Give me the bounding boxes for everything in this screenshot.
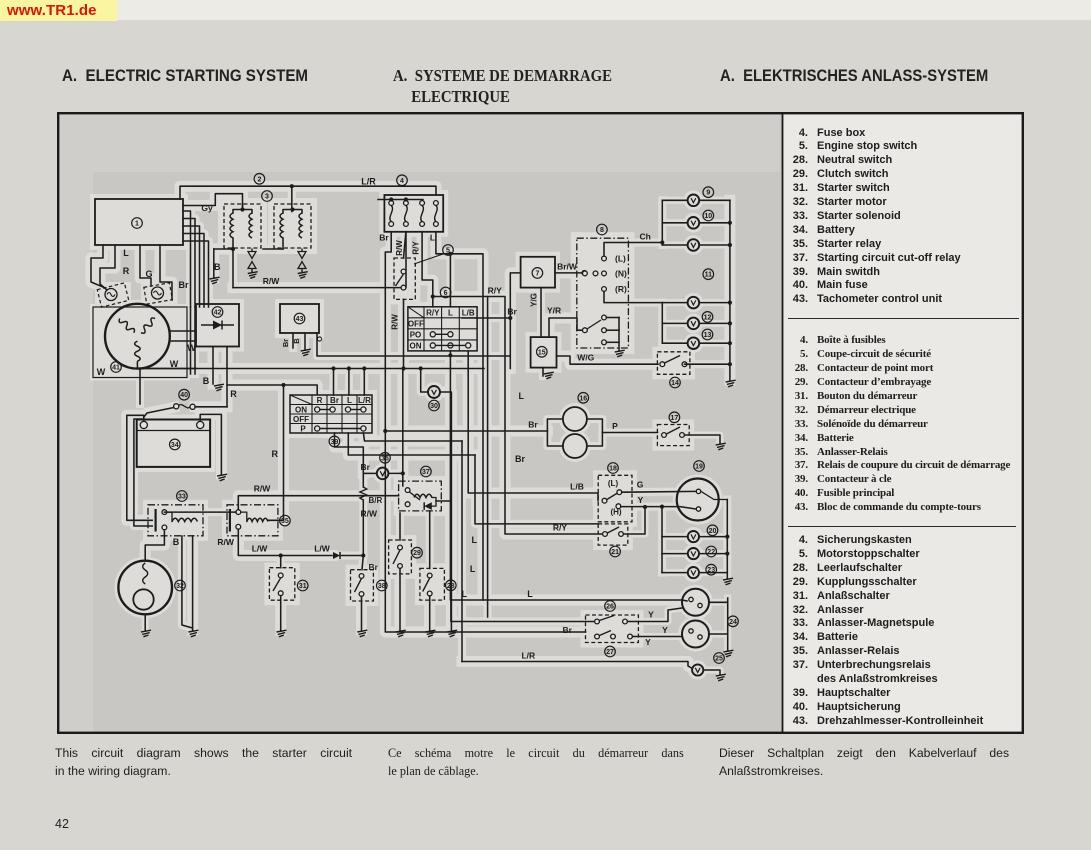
svg-text:Y: Y (638, 495, 644, 505)
svg-text:Ch: Ch (640, 232, 651, 242)
svg-text:B: B (203, 376, 210, 386)
svg-text:10: 10 (704, 213, 712, 220)
svg-text:ON: ON (410, 341, 422, 350)
svg-text:25: 25 (715, 656, 723, 663)
svg-text:21: 21 (611, 549, 619, 556)
svg-text:Br/W: Br/W (557, 262, 578, 272)
svg-text:R/Y: R/Y (426, 308, 440, 317)
svg-text:8: 8 (600, 227, 604, 234)
svg-text:36: 36 (381, 455, 389, 462)
svg-text:L: L (527, 589, 533, 599)
svg-text:35: 35 (281, 518, 289, 525)
svg-text:(R): (R) (615, 284, 627, 294)
svg-text:Br: Br (379, 233, 389, 243)
svg-text:42: 42 (214, 310, 222, 317)
svg-text:L/B: L/B (570, 482, 584, 492)
svg-text:9: 9 (706, 190, 710, 197)
svg-text:Br: Br (507, 307, 517, 317)
svg-text:L: L (430, 233, 435, 243)
svg-text:24: 24 (729, 619, 737, 626)
svg-text:3: 3 (265, 194, 269, 201)
svg-text:(N): (N) (615, 268, 627, 278)
svg-text:30: 30 (430, 403, 438, 410)
svg-text:38: 38 (378, 583, 386, 590)
svg-text:37: 37 (422, 469, 430, 476)
svg-text:(H): (H) (610, 508, 621, 517)
svg-text:L: L (518, 391, 524, 401)
svg-text:43: 43 (296, 316, 304, 323)
svg-text:G: G (145, 269, 152, 279)
svg-text:16: 16 (579, 395, 587, 402)
svg-text:P: P (300, 424, 306, 433)
svg-text:29: 29 (413, 550, 421, 557)
svg-text:Br: Br (330, 396, 339, 405)
svg-text:R: R (230, 389, 237, 399)
svg-text:W: W (97, 367, 106, 377)
svg-text:(L): (L) (615, 254, 626, 264)
svg-text:O: O (315, 336, 324, 342)
svg-text:L: L (472, 535, 478, 545)
svg-text:L/R: L/R (358, 396, 371, 405)
svg-text:R/Y: R/Y (412, 241, 421, 255)
svg-text:L/B: L/B (462, 308, 475, 317)
svg-text:27: 27 (606, 649, 614, 656)
svg-text:ON: ON (295, 405, 307, 414)
svg-text:20: 20 (709, 528, 717, 535)
svg-text:L/W: L/W (252, 544, 269, 554)
svg-text:41: 41 (112, 365, 120, 372)
svg-text:1: 1 (135, 221, 139, 228)
svg-text:31: 31 (299, 583, 307, 590)
svg-text:Y: Y (648, 610, 654, 620)
svg-text:B: B (292, 338, 301, 344)
svg-text:13: 13 (704, 332, 712, 339)
svg-text:PO: PO (410, 330, 422, 339)
svg-text:Y/G: Y/G (530, 293, 539, 307)
svg-text:W: W (170, 359, 179, 369)
svg-text:B: B (173, 537, 180, 547)
svg-text:Y/R: Y/R (547, 306, 561, 316)
svg-text:5: 5 (446, 248, 450, 255)
svg-text:Y: Y (645, 637, 651, 647)
svg-text:23: 23 (707, 567, 715, 574)
svg-text:14: 14 (671, 380, 679, 387)
svg-text:Br: Br (528, 420, 538, 430)
svg-text:L: L (123, 248, 129, 258)
svg-text:17: 17 (671, 415, 679, 422)
svg-text:Br: Br (178, 280, 188, 290)
svg-text:L/R: L/R (361, 177, 376, 187)
svg-text:L: L (470, 564, 476, 574)
svg-text:L/W: L/W (314, 544, 331, 554)
svg-text:R/W: R/W (391, 314, 400, 330)
svg-text:Gy: Gy (201, 203, 213, 213)
svg-text:7: 7 (535, 270, 539, 277)
svg-text:6: 6 (444, 290, 448, 297)
svg-text:R/W: R/W (263, 276, 281, 286)
svg-text:W/G: W/G (577, 353, 594, 363)
svg-text:G: G (637, 480, 644, 490)
svg-text:R/W: R/W (254, 484, 272, 494)
svg-text:OFF: OFF (408, 319, 424, 328)
svg-text:B/R: B/R (369, 496, 383, 505)
svg-text:26: 26 (606, 604, 614, 611)
svg-text:R: R (272, 449, 279, 459)
svg-text:19: 19 (695, 464, 703, 471)
svg-text:OFF: OFF (293, 415, 309, 424)
svg-text:15: 15 (538, 349, 546, 356)
svg-text:22: 22 (707, 549, 715, 556)
svg-text:12: 12 (704, 314, 712, 321)
svg-text:40: 40 (180, 392, 188, 399)
svg-text:W: W (187, 343, 196, 353)
svg-text:Br: Br (361, 462, 371, 472)
svg-text:R/W: R/W (217, 537, 235, 547)
svg-text:B: B (214, 262, 221, 272)
svg-text:L: L (347, 396, 352, 405)
svg-text:R: R (317, 396, 323, 405)
svg-text:Y: Y (662, 625, 668, 635)
svg-text:L: L (448, 308, 453, 317)
svg-text:R: R (123, 266, 130, 276)
svg-text:2: 2 (257, 176, 261, 183)
svg-text:4: 4 (400, 178, 404, 185)
svg-text:(L): (L) (608, 479, 619, 488)
svg-text:Br: Br (563, 625, 573, 635)
svg-text:Br: Br (369, 562, 379, 572)
svg-text:34: 34 (171, 442, 179, 449)
svg-text:R/Y: R/Y (488, 286, 503, 296)
svg-text:Br: Br (515, 454, 525, 464)
svg-text:32: 32 (176, 583, 184, 590)
svg-text:Br: Br (281, 339, 290, 347)
svg-text:11: 11 (705, 272, 713, 279)
svg-text:P: P (612, 421, 618, 431)
svg-text:18: 18 (609, 466, 617, 473)
svg-text:R/W: R/W (395, 240, 404, 256)
svg-text:L/R: L/R (521, 651, 535, 661)
svg-text:33: 33 (178, 494, 186, 501)
